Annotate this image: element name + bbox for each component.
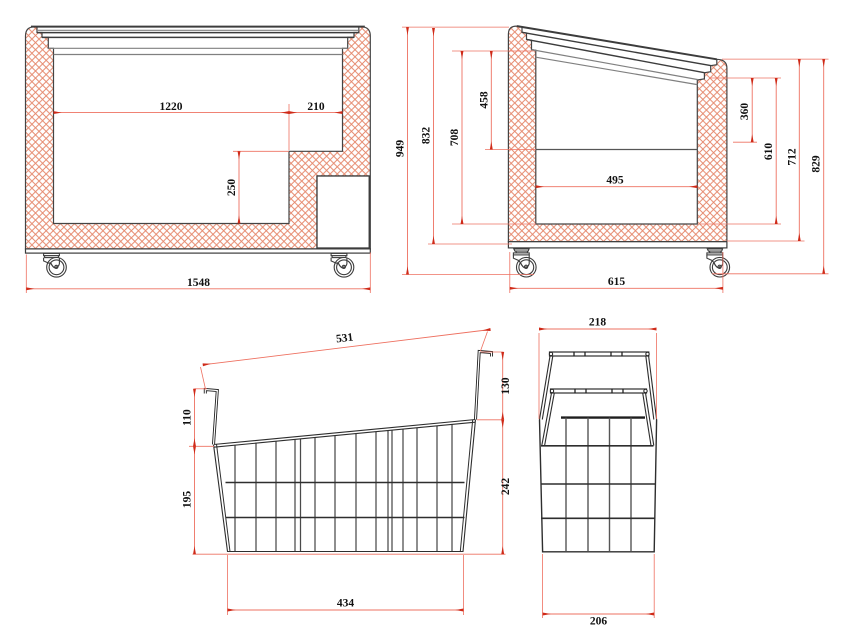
svg-text:708: 708 [449, 129, 461, 147]
svg-text:130: 130 [500, 377, 512, 395]
svg-text:610: 610 [763, 143, 775, 161]
svg-text:1220: 1220 [160, 101, 183, 113]
svg-text:210: 210 [307, 101, 325, 113]
svg-text:242: 242 [500, 478, 512, 496]
svg-text:1548: 1548 [187, 277, 210, 289]
svg-text:218: 218 [589, 317, 607, 329]
svg-text:832: 832 [421, 127, 433, 145]
svg-text:360: 360 [739, 103, 751, 121]
svg-text:712: 712 [786, 148, 798, 166]
svg-text:949: 949 [395, 140, 407, 158]
svg-text:206: 206 [590, 616, 608, 628]
svg-text:434: 434 [337, 598, 355, 610]
svg-text:615: 615 [608, 276, 626, 288]
svg-text:250: 250 [226, 179, 238, 197]
svg-text:110: 110 [182, 409, 194, 426]
svg-text:829: 829 [811, 155, 823, 173]
svg-text:458: 458 [478, 91, 490, 109]
svg-text:531: 531 [335, 331, 354, 345]
svg-text:495: 495 [606, 174, 624, 186]
svg-text:195: 195 [182, 491, 194, 509]
